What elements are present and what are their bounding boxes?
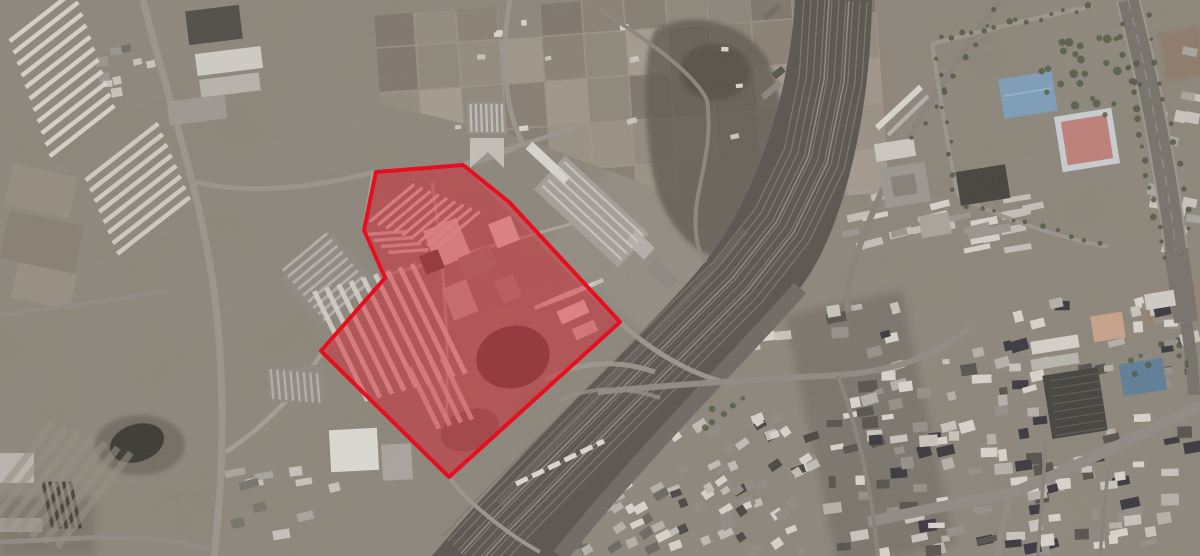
photo-grain <box>0 0 1200 556</box>
satellite-canvas <box>0 0 1200 556</box>
satellite-map-view[interactable] <box>0 0 1200 556</box>
